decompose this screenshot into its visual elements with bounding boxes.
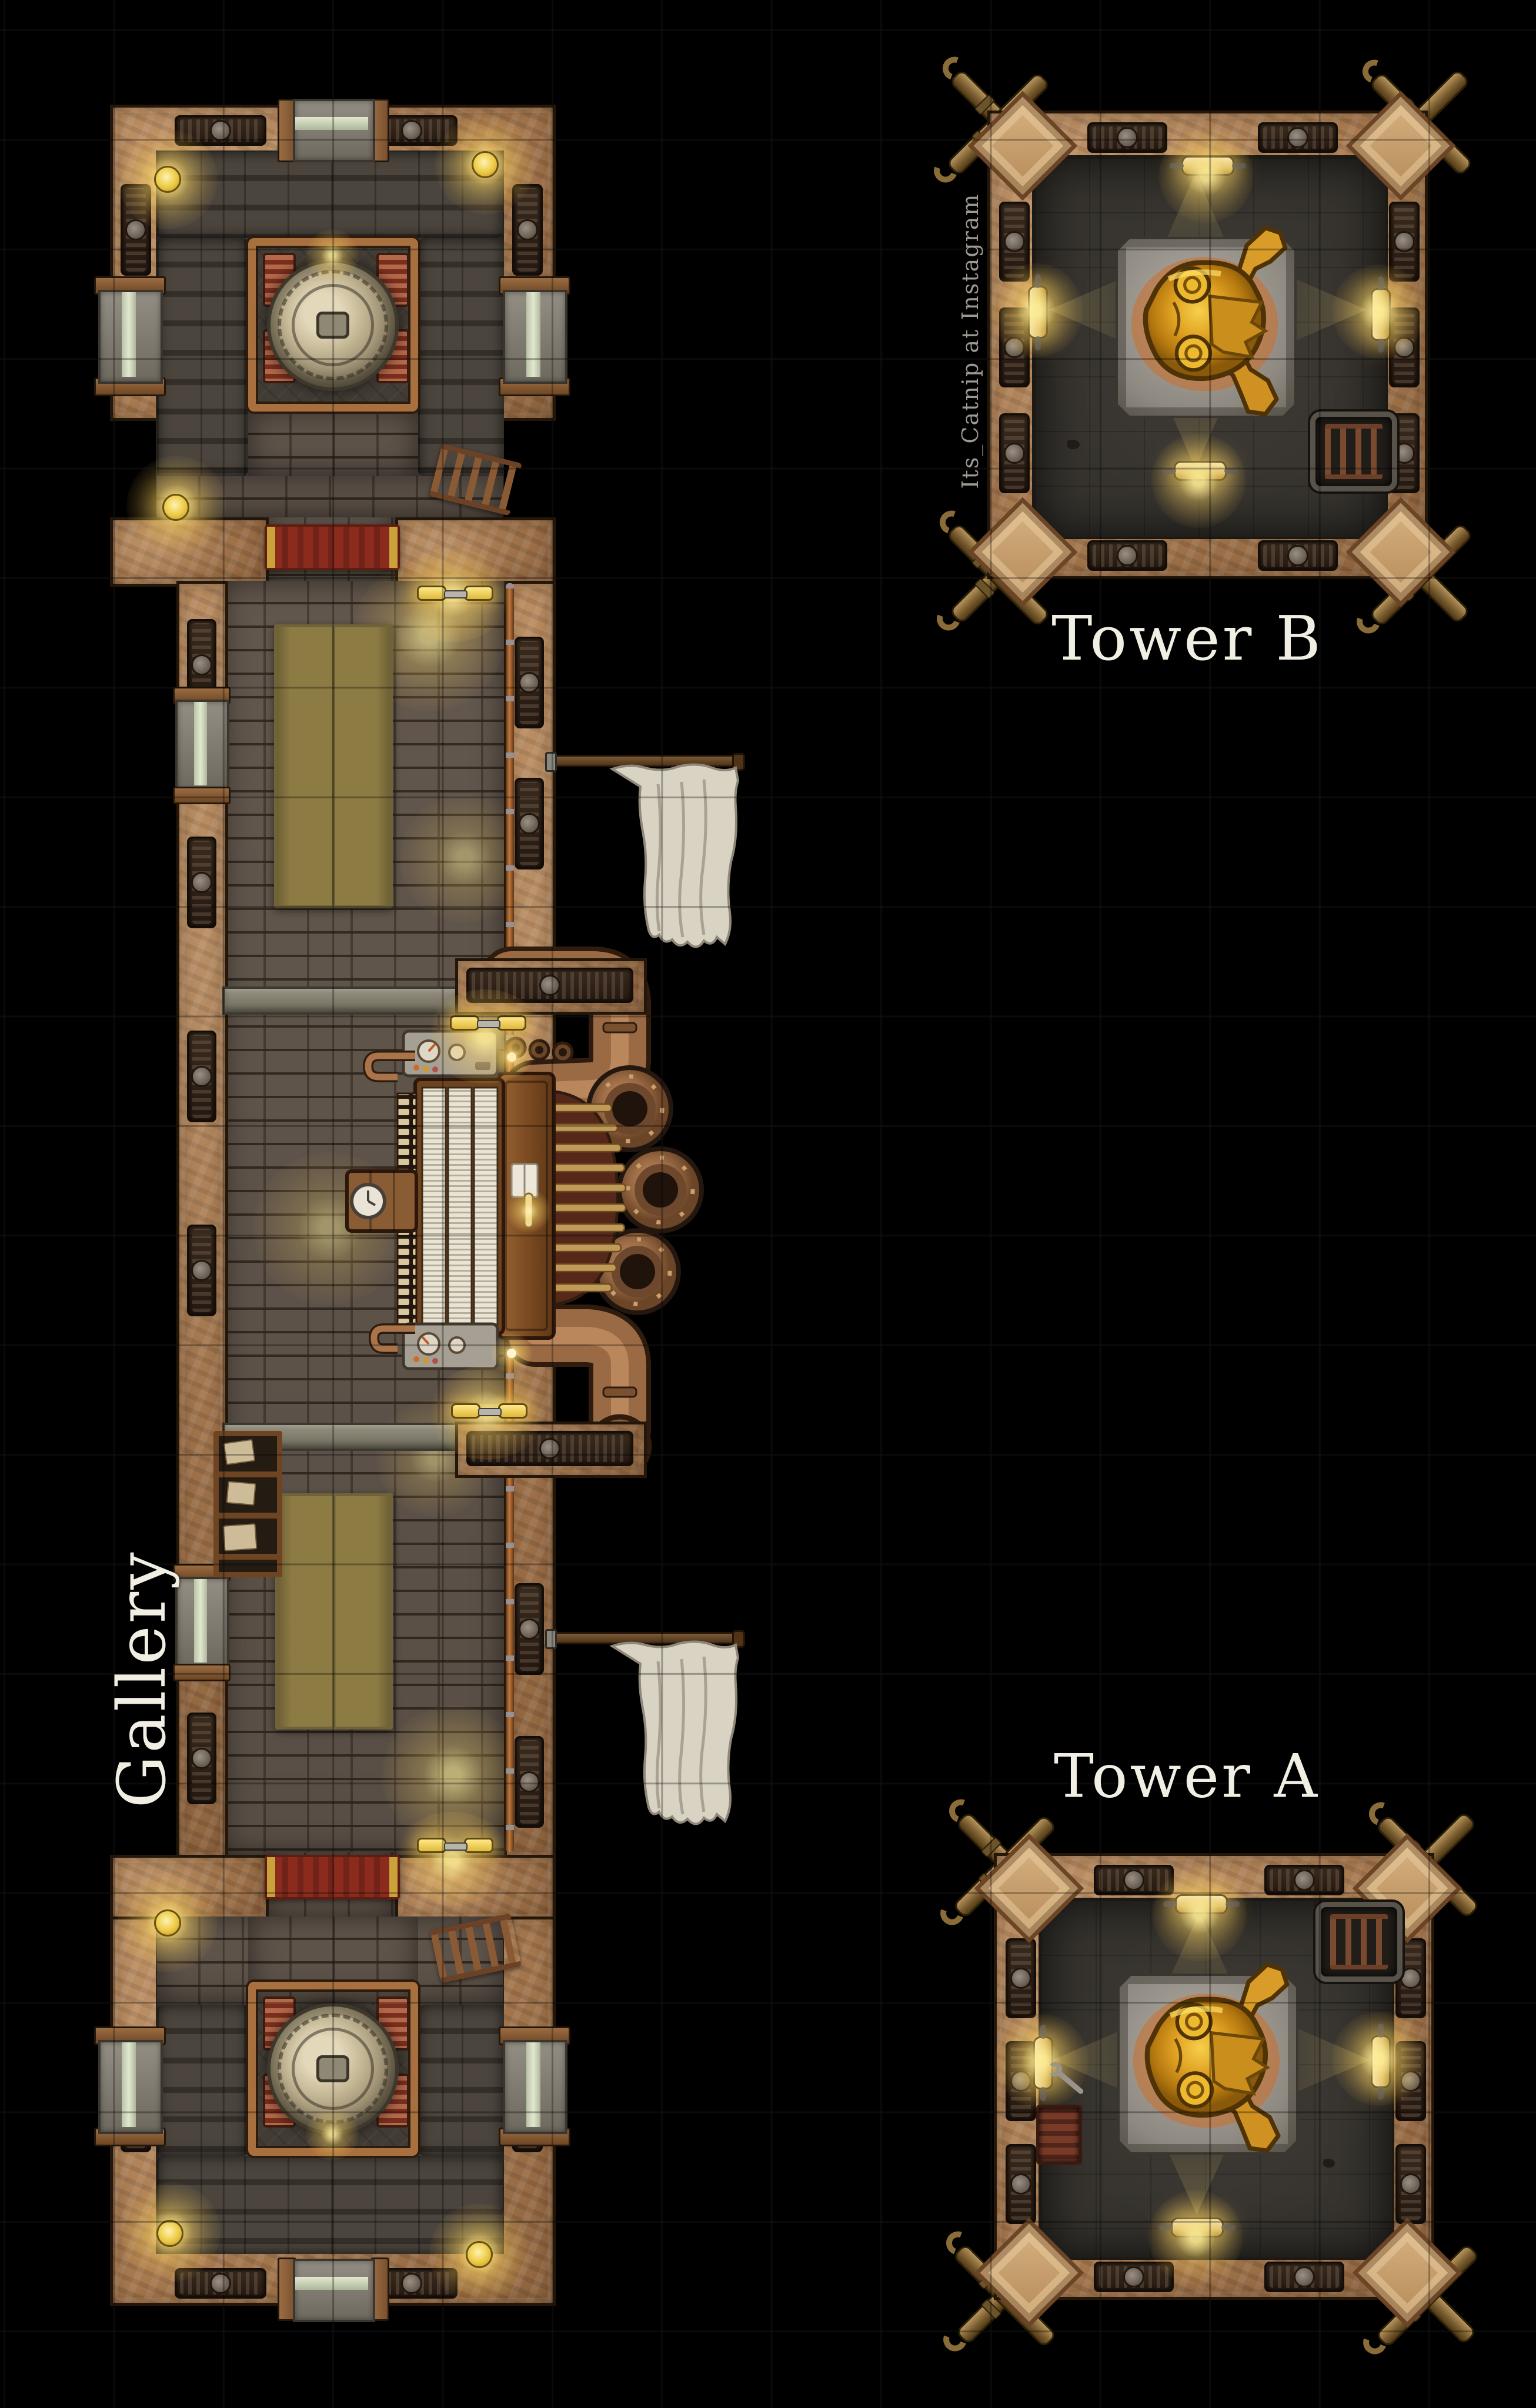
wall-panel [515,1736,544,1828]
corner-lamp [154,1909,181,1937]
watermark: Its_Catnip at Instagram [957,193,983,489]
wall-lamp [1028,286,1048,339]
gallery-south-room-northwall-east [395,1855,556,1922]
corner-lamp [156,2220,183,2247]
double-lamp [417,583,491,603]
floor-debris [1067,440,1080,449]
door-stripe [122,292,136,377]
wall-panel [999,413,1030,493]
hanging-banner-south [609,1638,741,1832]
pilaster-clamp [173,1664,231,1681]
stone-door-west [98,290,163,384]
wall-panel [1264,2262,1344,2292]
clock-table [347,1171,416,1231]
gallery-south-room-northwall-west [110,1855,269,1922]
wall-panel [466,1431,633,1466]
organ-white-pipes [415,1079,503,1333]
stone-door-east [503,290,567,384]
book [226,1481,256,1506]
stone-rows [157,2156,503,2254]
door-stripe [526,2042,540,2127]
wall-panel [515,637,544,728]
floor-hatch [1315,1902,1403,1982]
wall-panel [1389,307,1420,387]
double-lamp [450,1013,524,1033]
wall-panel [515,778,544,869]
wall-panel [1395,2144,1426,2224]
gallery-north-room-southwall-west [110,517,269,587]
stone-door-west [98,2040,163,2134]
golden-statue [1101,1946,1324,2169]
dome-machine [267,259,399,391]
wall-panel [515,1583,544,1675]
floor-hatch [1310,412,1397,491]
brick-floor [248,412,418,476]
wall-lamp [1033,2036,1053,2089]
wall-lamp [1371,288,1391,341]
organ-control-panel-north [403,1031,497,1076]
red-carpet-south [265,1855,400,1899]
hatch-ladder [1325,424,1383,479]
gallery-north-room-southwall-east [395,517,556,587]
wall-panel [999,307,1030,387]
wall-panel [466,968,633,1003]
hanging-banner-north [609,761,741,955]
door-stripe [194,702,207,785]
wall-panel [1389,202,1420,282]
door-stripe [122,2042,136,2127]
dome-rivets [278,2014,388,2124]
wall-panel [175,115,266,146]
wall-panel [175,2268,266,2299]
wall-panel [1006,2144,1036,2224]
wall-lamp [1371,2035,1391,2088]
door-stripe [295,2277,368,2290]
stone-rows [418,2005,504,2156]
wall-panel [512,184,543,276]
double-lamp [451,1401,525,1421]
wall-panel [1264,1865,1344,1895]
stone-door-west [175,700,229,792]
red-carpet-north [265,524,400,570]
organ-control-panel-south [403,1324,497,1369]
wall-panel [1087,122,1167,153]
stone-door-west [175,1577,229,1670]
book [223,1523,258,1551]
wall-panel [187,1031,216,1122]
stone-rows [157,152,503,238]
wall-panel [1258,122,1338,153]
double-lamp [417,1835,491,1855]
stone-door-north [293,99,375,162]
tower-a-label: Tower A [1054,1742,1320,1812]
wall-panel [1258,540,1338,571]
corner-lamp [162,494,189,521]
stone-door-south [293,2259,375,2322]
pilaster-clamp [173,787,231,804]
long-rug-south [275,1493,393,1730]
east-wall-stub [455,1422,647,1478]
floor-debris [1323,2159,1335,2168]
stone-rows [157,238,248,476]
dome-machine [267,2003,399,2135]
long-rug-north [274,624,393,908]
east-wall-stub [455,958,647,1015]
wall-panel [1087,540,1167,571]
door-stripe [295,117,368,130]
wall-lamp [1181,156,1234,176]
wall-panel [1094,2262,1174,2292]
corner-lamp [472,151,499,178]
wall-panel [1395,2041,1426,2121]
wall-panel [187,1713,216,1804]
book [223,1439,256,1466]
tower-b [987,111,1428,579]
battle-map: Gallery Tower B Tower A Its_Catnip at In… [0,0,1536,2408]
door-stripe [526,292,540,377]
gallery-label: Gallery [104,1550,181,1808]
stone-rows [418,238,504,476]
wall-panel [121,184,151,276]
wall-lamp [1171,2218,1224,2238]
corner-lamp [466,2241,493,2268]
stone-rows [157,2005,248,2156]
wall-panel [1006,1938,1036,2018]
wall-panel [999,202,1030,282]
bookshelf [213,1431,282,1577]
dome-rivets [278,270,388,380]
wall-panel [1094,1865,1174,1895]
wall-lamp [1175,1894,1228,1914]
door-stripe [194,1579,207,1663]
wall-panel [187,837,216,928]
stone-door-east [503,2040,567,2134]
tower-a [994,1853,1434,2300]
tower-b-label: Tower B [1051,603,1323,674]
wall-panel [1006,2041,1036,2121]
hatch-ladder [1330,1914,1388,1969]
wall-lamp [1174,461,1227,481]
wall-panel [187,1225,216,1316]
corner-lamp [154,166,181,193]
golden-statue [1099,209,1323,433]
toolbox [1036,2105,1082,2165]
